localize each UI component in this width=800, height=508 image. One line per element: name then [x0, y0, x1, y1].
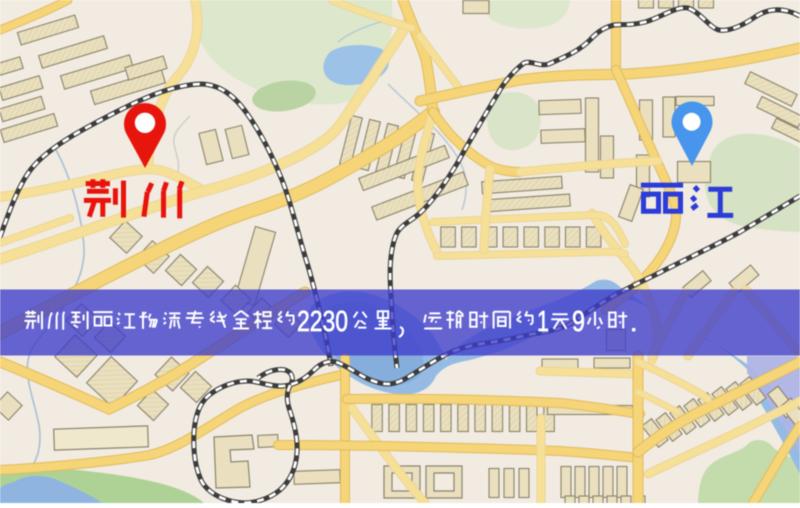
svg-text:9: 9	[572, 306, 585, 338]
svg-text:2230: 2230	[297, 306, 348, 338]
svg-text:1: 1	[537, 306, 549, 338]
